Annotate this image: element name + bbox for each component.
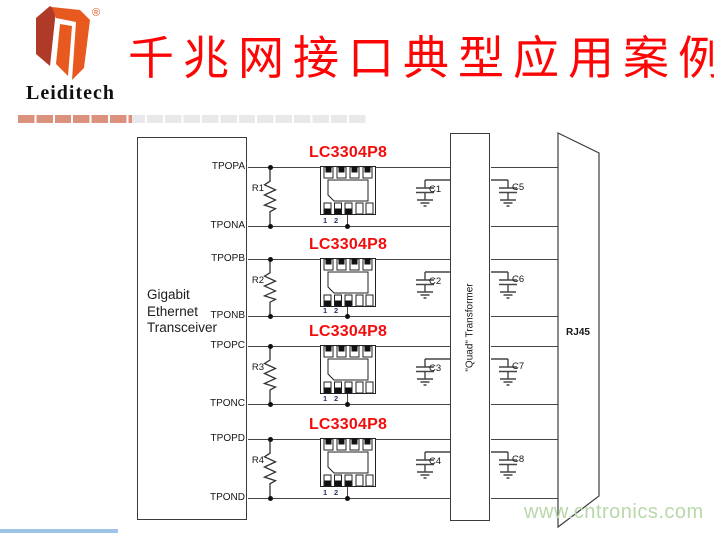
junction-dot xyxy=(268,402,273,407)
bottom-edge-strip xyxy=(0,529,118,533)
pin-label-tpona: TPONA xyxy=(181,220,245,232)
wire-tpond-right xyxy=(491,498,558,499)
segmented-divider-bar xyxy=(18,115,366,123)
resistor-r1-label: R1 xyxy=(240,183,264,194)
junction-dot xyxy=(268,224,273,229)
capacitor-c6-icon xyxy=(491,266,529,306)
pin-label-tpopd: TPOPD xyxy=(181,433,245,445)
quad-transformer-label: "Quad" Transformer xyxy=(465,283,476,371)
ic-package-c-icon xyxy=(320,345,376,394)
pin-label-tpopc: TPOPC xyxy=(181,340,245,352)
wire-tpopa-right xyxy=(491,167,558,168)
ic-label-c: LC3304P8 xyxy=(303,323,393,341)
wire-tpopb-right xyxy=(491,259,558,260)
junction-dot xyxy=(268,165,273,170)
rj45-label: RJ45 xyxy=(560,327,596,338)
capacitor-c7-icon xyxy=(491,353,529,393)
registered-mark-icon: ® xyxy=(92,7,100,19)
capacitor-c5-label: C5 xyxy=(512,182,524,193)
ic-d-pin2: 2 xyxy=(334,488,338,497)
ic-label-b: LC3304P8 xyxy=(303,236,393,254)
capacitor-c3-label: C3 xyxy=(429,363,441,374)
capacitor-c4-label: C4 xyxy=(429,456,441,467)
resistor-r4-icon xyxy=(261,439,279,498)
capacitor-c7-label: C7 xyxy=(512,361,524,372)
junction-dot xyxy=(345,224,350,229)
junction-dot xyxy=(268,314,273,319)
ic-a-pin1: 1 xyxy=(323,216,327,225)
pin-label-tpopa: TPOPA xyxy=(181,161,245,173)
ic-label-d: LC3304P8 xyxy=(303,416,393,434)
junction-dot xyxy=(345,314,350,319)
ic-b-pin2: 2 xyxy=(334,306,338,315)
transceiver-label-line1: Gigabit xyxy=(147,287,217,304)
ic-c-pin2: 2 xyxy=(334,394,338,403)
page-title: 千兆网接口典型应用案例 xyxy=(128,22,708,88)
pin-label-tpopb: TPOPB xyxy=(181,253,245,265)
junction-dot xyxy=(268,257,273,262)
ic-c-pin1: 1 xyxy=(323,394,327,403)
wire-tponc-right xyxy=(491,404,558,405)
ic-label-a: LC3304P8 xyxy=(303,144,393,162)
junction-dot xyxy=(268,344,273,349)
resistor-r2-label: R2 xyxy=(240,275,264,286)
pin-label-tponb: TPONB xyxy=(181,310,245,322)
leiditech-logo-icon: ® xyxy=(28,4,108,86)
capacitor-c6-label: C6 xyxy=(512,274,524,285)
watermark: www.cntronics.com xyxy=(524,501,704,524)
ic-package-d-icon xyxy=(320,438,376,487)
junction-dot xyxy=(345,496,350,501)
wire-tpopd-right xyxy=(491,439,558,440)
junction-dot xyxy=(268,496,273,501)
junction-dot xyxy=(345,402,350,407)
ic-package-a-icon xyxy=(320,166,376,215)
resistor-r3-label: R3 xyxy=(240,362,264,373)
capacitor-c5-icon xyxy=(491,174,529,214)
capacitor-c1-label: C1 xyxy=(429,184,441,195)
capacitor-c2-label: C2 xyxy=(429,276,441,287)
capacitor-c8-icon xyxy=(491,446,529,486)
logo-text: Leiditech xyxy=(26,82,115,105)
ic-a-pin2: 2 xyxy=(334,216,338,225)
junction-dot xyxy=(268,437,273,442)
transceiver-label-line3: Transceiver xyxy=(147,320,217,337)
resistor-r3-icon xyxy=(261,346,279,404)
pin-label-tpond: TPOND xyxy=(181,492,245,504)
ic-package-b-icon xyxy=(320,258,376,307)
resistor-r4-label: R4 xyxy=(240,455,264,466)
wire-tponb-right xyxy=(491,316,558,317)
resistor-r2-icon xyxy=(261,259,279,316)
capacitor-c8-label: C8 xyxy=(512,454,524,465)
wire-tpopc-right xyxy=(491,346,558,347)
ic-b-pin1: 1 xyxy=(323,306,327,315)
wire-tpona-right xyxy=(491,226,558,227)
pin-label-tponc: TPONC xyxy=(181,398,245,410)
quad-transformer-box: "Quad" Transformer xyxy=(450,133,490,521)
ic-d-pin1: 1 xyxy=(323,488,327,497)
resistor-r1-icon xyxy=(261,167,279,226)
